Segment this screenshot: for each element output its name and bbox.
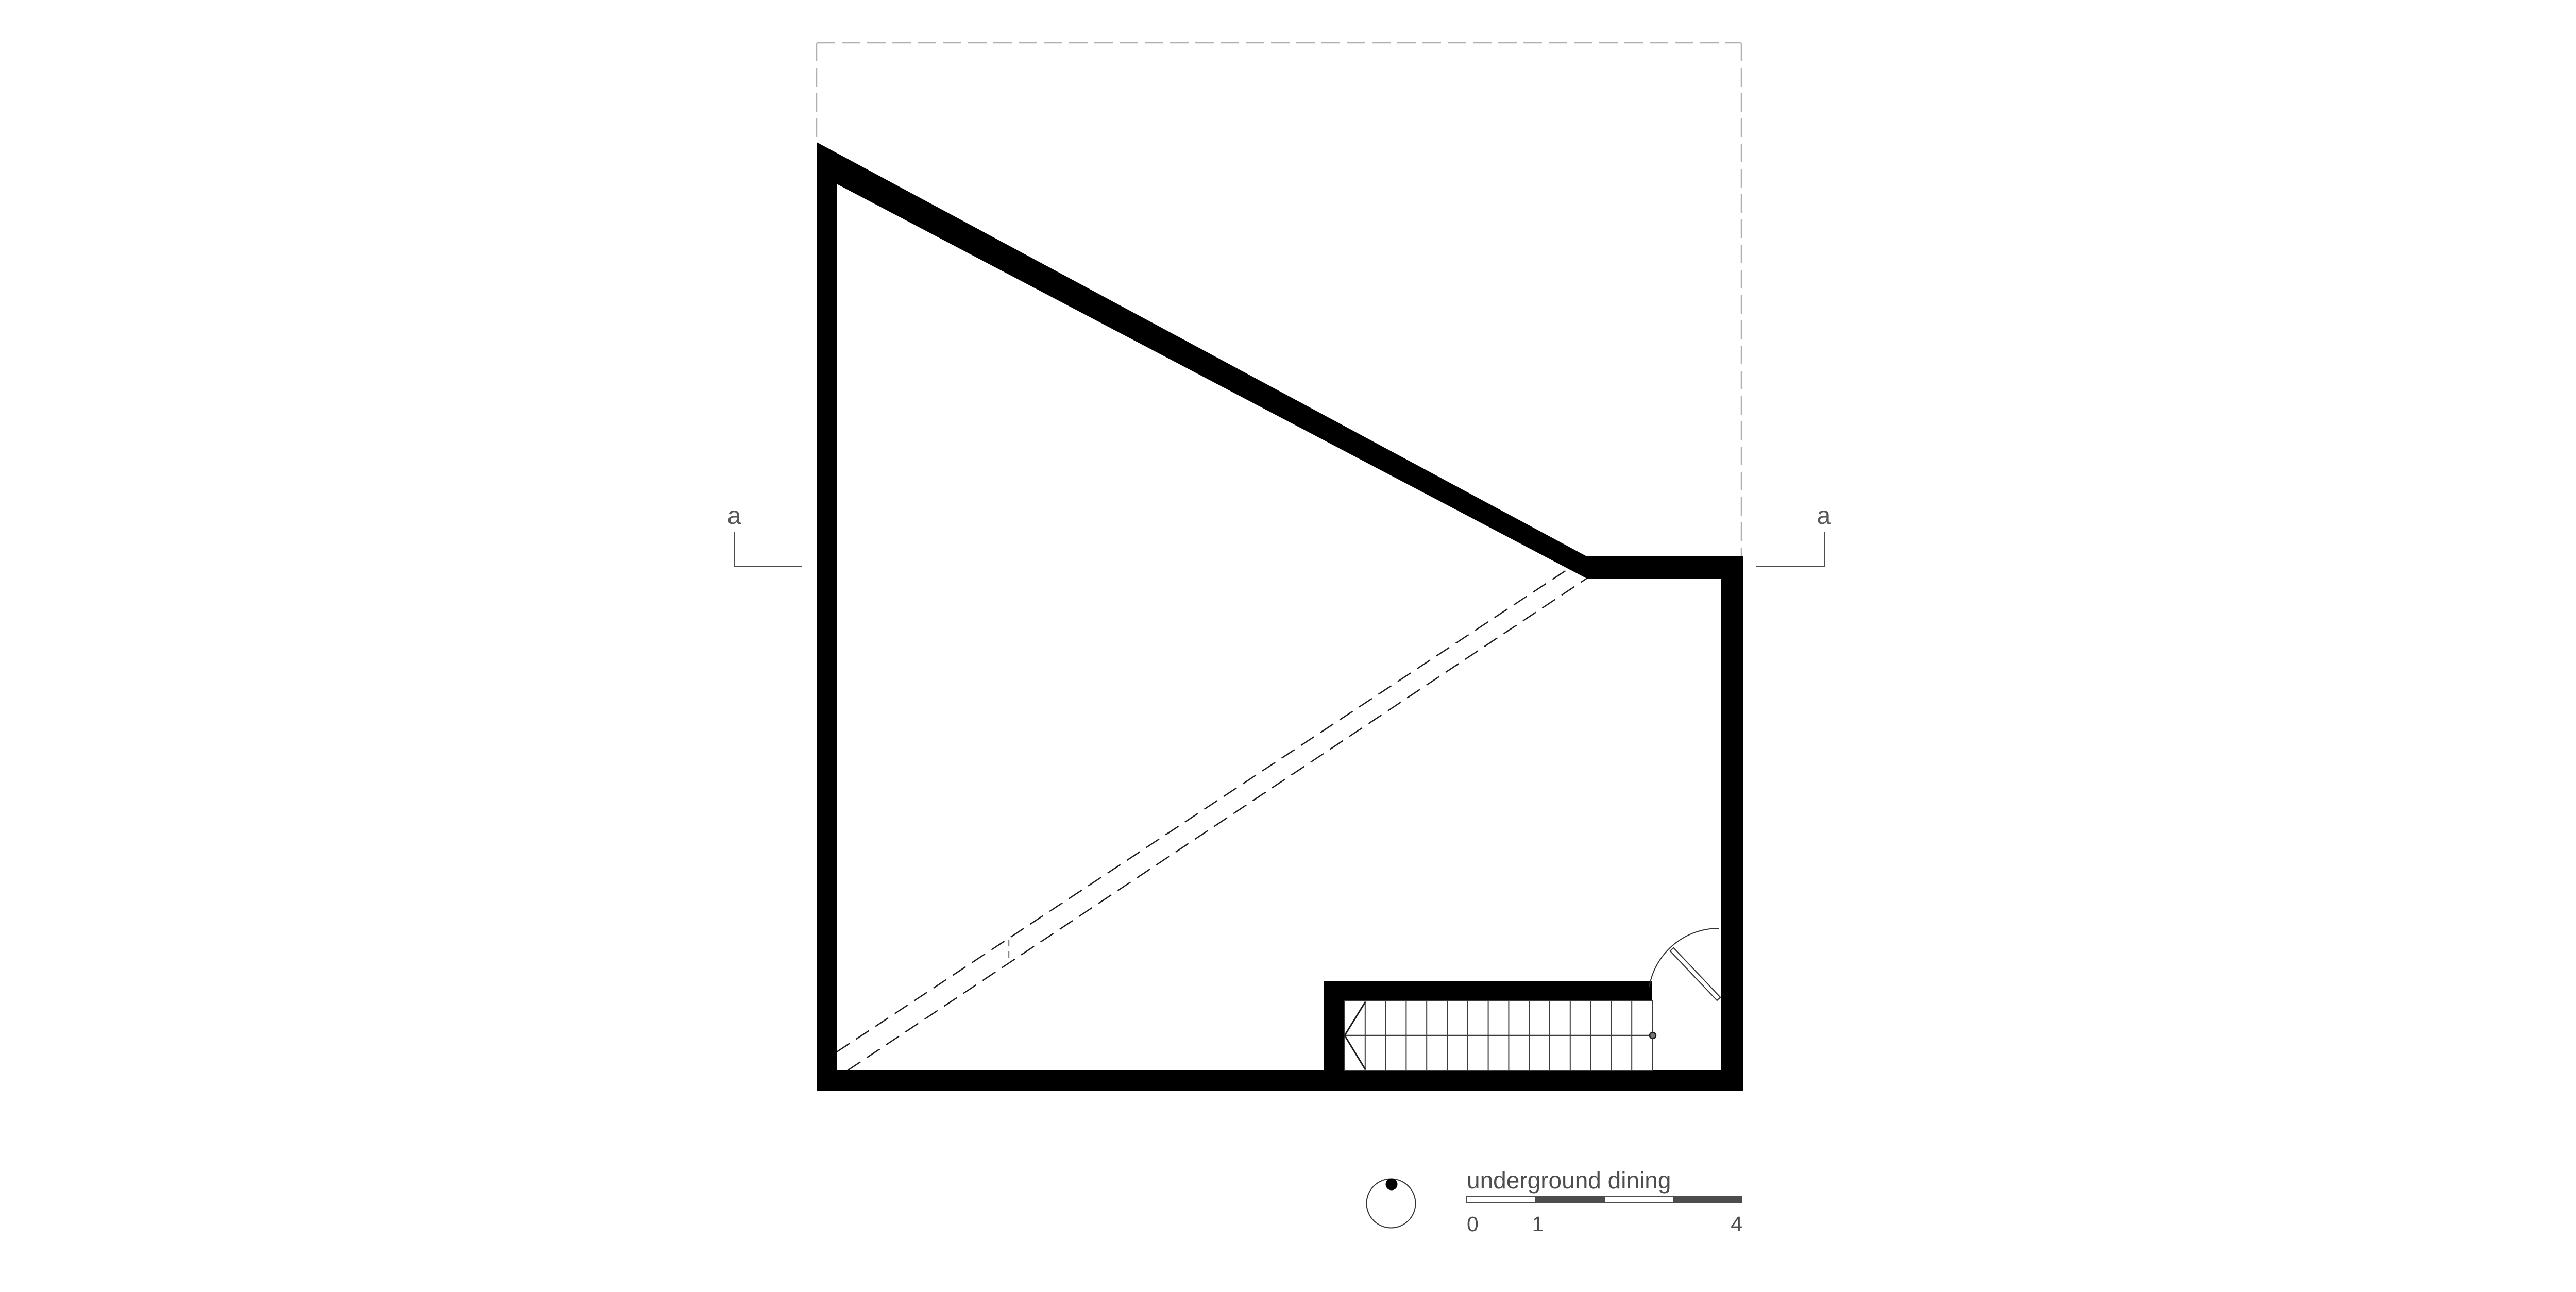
scale-label-1: 1 bbox=[1532, 1212, 1544, 1236]
drawing-title: underground dining bbox=[1467, 1167, 1671, 1194]
door-leaf bbox=[1670, 948, 1721, 1000]
scale-bar-segment-2 bbox=[1536, 1196, 1605, 1203]
scale-bar-segment-3 bbox=[1605, 1196, 1674, 1203]
title-block: underground dining 0 1 4 bbox=[1467, 1167, 1742, 1236]
section-marker-left: a bbox=[727, 502, 802, 567]
section-marker-right-label: a bbox=[1817, 502, 1831, 530]
door-swing bbox=[1649, 928, 1720, 1000]
stair-arrow-start-circle bbox=[1650, 1032, 1656, 1039]
stair-end-wall bbox=[1324, 981, 1345, 1070]
architectural-drawing-sheet: a a underground dining 0 1 4 bbox=[0, 0, 2576, 1292]
scale-label-4: 4 bbox=[1731, 1212, 1742, 1236]
boundary-dashed-outline bbox=[817, 43, 1741, 556]
wall-outline bbox=[817, 142, 1743, 1091]
floor-plan-underground-dining: a a underground dining 0 1 4 bbox=[0, 0, 2576, 1292]
north-dot bbox=[1386, 1179, 1398, 1191]
door-swing-arc bbox=[1649, 928, 1719, 987]
scale-bar-segment-1 bbox=[1467, 1196, 1536, 1203]
north-indicator-icon bbox=[1367, 1179, 1416, 1228]
scale-label-0: 0 bbox=[1467, 1212, 1479, 1236]
section-marker-right: a bbox=[1756, 502, 1831, 567]
dashed-diagonal-upper-line bbox=[837, 570, 1566, 1052]
section-marker-right-line bbox=[1756, 532, 1824, 567]
stair-direction-arrow bbox=[1345, 1002, 1656, 1069]
stair-upper-wall bbox=[1324, 981, 1652, 1000]
section-marker-left-label: a bbox=[727, 502, 741, 530]
section-marker-left-line bbox=[734, 532, 802, 567]
scale-bar-segment-4 bbox=[1673, 1196, 1742, 1203]
scale-bar bbox=[1467, 1196, 1742, 1203]
